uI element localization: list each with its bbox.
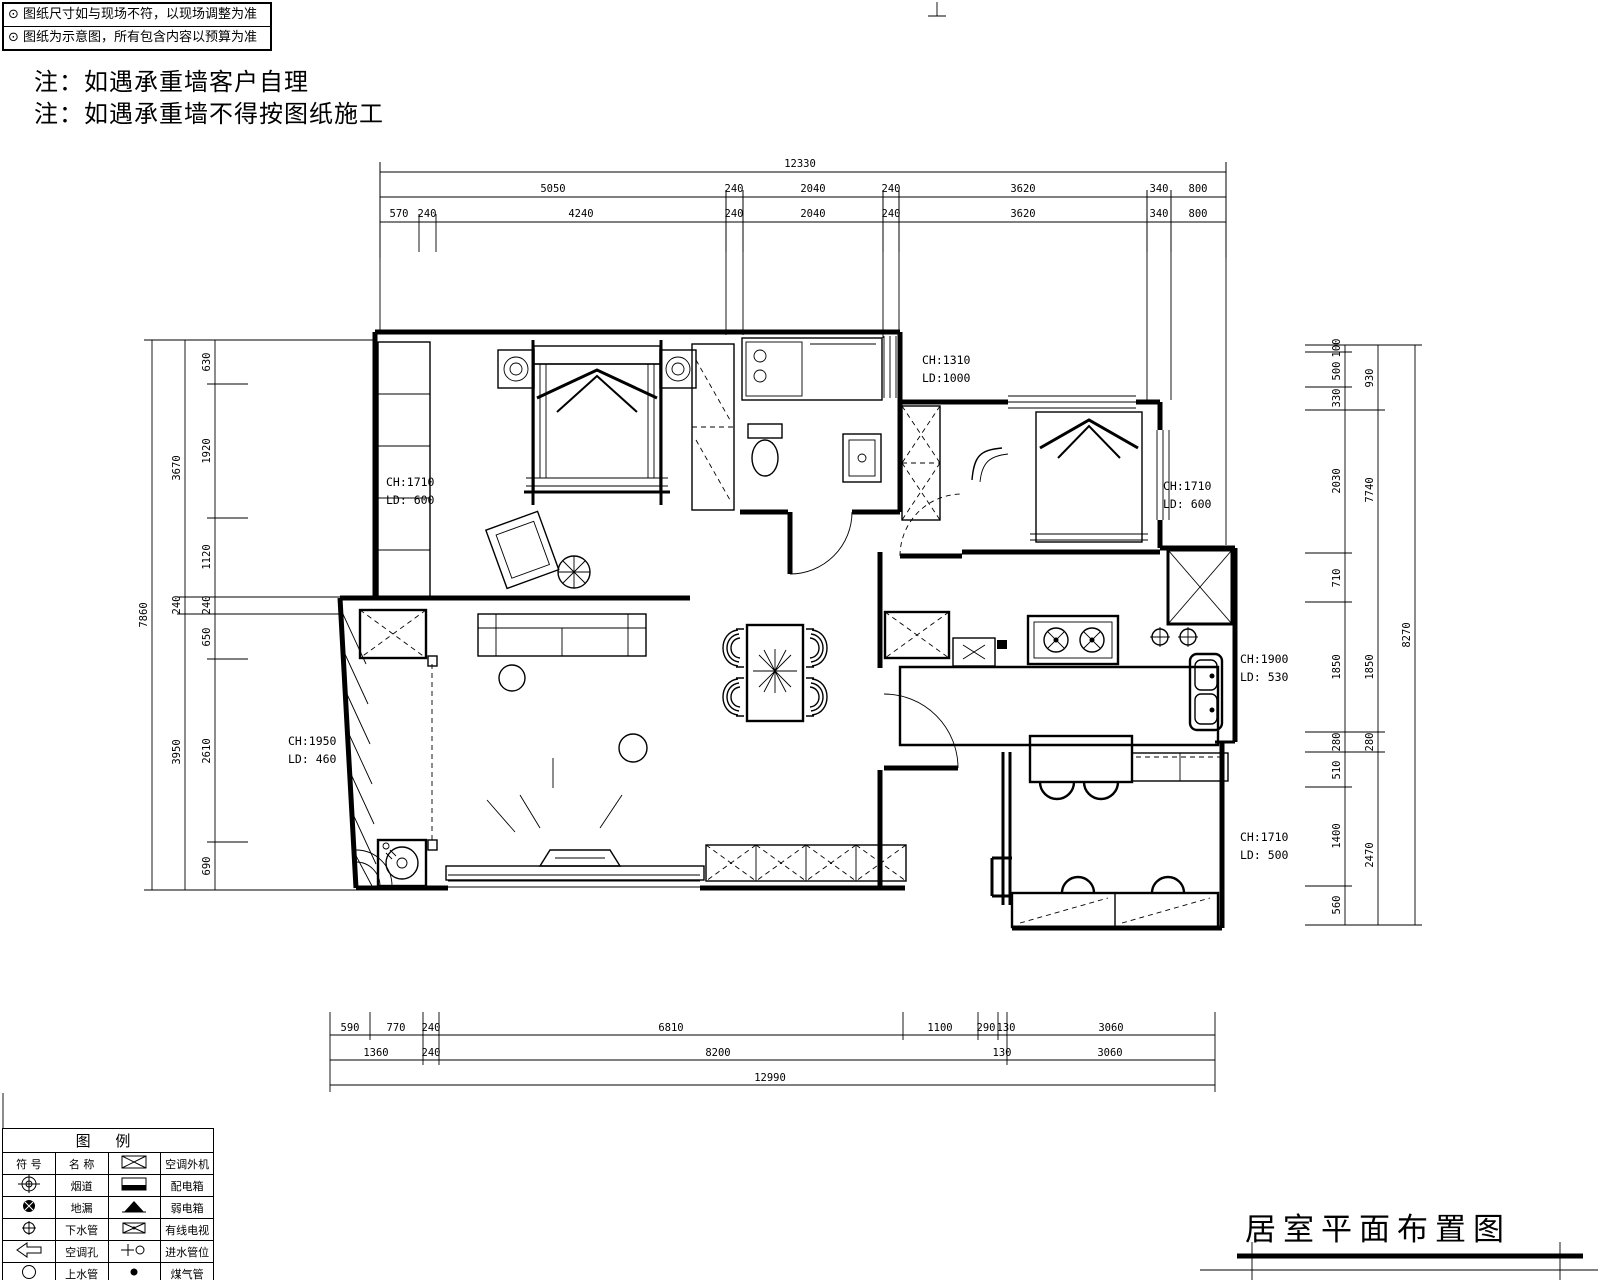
legend-symbol-header: 符 号 <box>3 1153 56 1175</box>
legend-label: 空调外机 <box>161 1153 214 1175</box>
windows <box>448 336 1169 887</box>
dim-label: 800 <box>1189 208 1208 220</box>
title-block: 居室平面布置图 <box>1200 1212 1598 1280</box>
dim-label: 3670 <box>171 455 183 480</box>
cable-tv-icon <box>119 1219 149 1237</box>
low-voltage-box-icon <box>119 1197 149 1215</box>
dim-label: 2610 <box>201 738 213 763</box>
gas-pipe-icon <box>119 1263 149 1280</box>
legend-table: 图 例 符 号 名 称 空调外机 烟道 配电箱 地漏 <box>2 1128 214 1280</box>
dim-label: 510 <box>1331 761 1343 780</box>
dim-label: 770 <box>387 1022 406 1034</box>
sheet-frame-mark <box>3 2 946 1128</box>
dim-label: 240 <box>725 183 744 195</box>
annotation-text: LD:1000 <box>922 371 971 385</box>
kitchen-fixtures <box>885 550 1232 745</box>
dim-label: 630 <box>201 353 213 372</box>
legend-label: 煤气管 <box>161 1263 214 1280</box>
legend-label: 空调孔 <box>55 1241 108 1263</box>
dim-label: 240 <box>422 1022 441 1034</box>
dim-label: 340 <box>1150 183 1169 195</box>
dim-label: 930 <box>1364 369 1376 388</box>
dim-label: 1120 <box>201 544 213 569</box>
dim-label: 4240 <box>568 208 593 220</box>
annotation-text: LD: 500 <box>1240 848 1289 862</box>
legend-label: 进水管位 <box>161 1241 214 1263</box>
floor-drain-icon <box>14 1197 44 1215</box>
dim-label: 560 <box>1331 896 1343 915</box>
room-annotations: CH:1310 LD:1000 CH:1710 LD: 600 CH:1710 … <box>288 353 1289 862</box>
legend-label: 下水管 <box>55 1219 108 1241</box>
dim-label: 2040 <box>800 208 825 220</box>
dimension-labels-left: 630 1920 1120 240 650 2610 690 3670 240 … <box>138 353 213 876</box>
dim-label: 570 <box>390 208 409 220</box>
power-box-icon <box>119 1175 149 1193</box>
dim-label: 1360 <box>363 1047 388 1059</box>
dimension-labels-right: 100 500 330 2030 710 1850 280 510 1400 5… <box>1331 339 1413 915</box>
legend-cell <box>108 1241 161 1263</box>
annotation-text: CH:1710 <box>386 475 435 489</box>
dim-label: 240 <box>725 208 744 220</box>
balcony-fixtures <box>1012 736 1228 927</box>
dimension-labels-bottom: 590 770 240 6810 1100 290 130 3060 1360 … <box>341 1022 1124 1084</box>
annotation-text: LD: 600 <box>1163 497 1212 511</box>
legend-label: 有线电视 <box>161 1219 214 1241</box>
legend-cell <box>3 1241 56 1263</box>
dim-label: 1100 <box>927 1022 952 1034</box>
ac-hole-icon <box>14 1241 44 1259</box>
dim-label: 280 <box>1331 733 1343 752</box>
dim-label: 710 <box>1331 569 1343 588</box>
annotation-text: LD: 600 <box>386 493 435 507</box>
bedroom-right-furniture <box>902 406 1148 542</box>
dim-label: 7740 <box>1364 477 1376 502</box>
legend-cell <box>108 1153 161 1175</box>
dim-label: 3950 <box>171 739 183 764</box>
dim-label: 240 <box>882 208 901 220</box>
annotation-text: LD: 460 <box>288 752 337 766</box>
annotation-text: CH:1710 <box>1240 830 1289 844</box>
legend-cell <box>3 1197 56 1219</box>
dim-label: 650 <box>201 628 213 647</box>
dim-label: 800 <box>1189 183 1208 195</box>
dim-label: 240 <box>422 1047 441 1059</box>
dim-label: 2470 <box>1364 842 1376 867</box>
legend-label: 烟道 <box>55 1175 108 1197</box>
legend-label: 上水管 <box>55 1263 108 1280</box>
dim-label: 240 <box>882 183 901 195</box>
dim-label: 100 <box>1331 339 1343 358</box>
bathroom-fixtures <box>742 338 882 482</box>
legend-cell <box>3 1175 56 1197</box>
dim-label: 7860 <box>138 602 150 627</box>
dim-label: 240 <box>418 208 437 220</box>
dim-label: 3620 <box>1010 208 1035 220</box>
floor-plan-drawing: 12330 5050 240 2040 240 3620 340 800 570… <box>0 0 1600 1280</box>
dim-label: 290 <box>977 1022 996 1034</box>
legend-cell <box>108 1263 161 1280</box>
legend-label: 弱电箱 <box>161 1197 214 1219</box>
dim-label: 1850 <box>1331 654 1343 679</box>
legend-label: 地漏 <box>55 1197 108 1219</box>
dim-label: 3620 <box>1010 183 1035 195</box>
dim-label: 2040 <box>800 183 825 195</box>
floor-plan-sheet: ⊙ 图纸尺寸如与现场不符，以现场调整为准 ⊙ 图纸为示意图，所有包含内容以预算为… <box>0 0 1600 1280</box>
legend-cell <box>3 1263 56 1280</box>
dim-label: 240 <box>201 596 213 615</box>
legend-label: 配电箱 <box>161 1175 214 1197</box>
dim-label: 2030 <box>1331 468 1343 493</box>
dim-label: 590 <box>341 1022 360 1034</box>
dim-label: 240 <box>171 596 183 615</box>
annotation-text: CH:1310 <box>922 353 971 367</box>
secondary-walls <box>992 742 1235 905</box>
dim-label: 280 <box>1364 733 1376 752</box>
annotation-text: LD: 530 <box>1240 670 1289 684</box>
dim-label: 1920 <box>201 438 213 463</box>
ac-outdoor-unit-icon <box>119 1153 149 1171</box>
annotation-text: CH:1900 <box>1240 652 1289 666</box>
dim-label: 340 <box>1150 208 1169 220</box>
dim-label: 130 <box>993 1047 1012 1059</box>
dim-label: 12330 <box>784 158 816 170</box>
dim-label: 690 <box>201 857 213 876</box>
dim-label: 130 <box>997 1022 1016 1034</box>
dim-label: 12990 <box>754 1072 786 1084</box>
annotation-text: CH:1950 <box>288 734 337 748</box>
flue-icon <box>14 1175 44 1193</box>
walls <box>340 332 1235 928</box>
plan-title: 居室平面布置图 <box>1245 1212 1511 1248</box>
legend-name-header: 名 称 <box>55 1153 108 1175</box>
sewer-pipe-icon <box>14 1219 44 1237</box>
entry-area <box>342 610 437 886</box>
living-dining-furniture <box>446 614 906 881</box>
dimension-labels-top: 12330 5050 240 2040 240 3620 340 800 570… <box>390 158 1208 220</box>
dim-label: 8270 <box>1401 622 1413 647</box>
water-inlet-icon <box>119 1241 149 1259</box>
water-supply-icon <box>14 1263 44 1280</box>
bedroom-left-furniture <box>378 340 734 598</box>
dim-label: 1850 <box>1364 654 1376 679</box>
dim-label: 330 <box>1331 389 1343 408</box>
plant <box>753 649 797 693</box>
legend-cell <box>108 1197 161 1219</box>
dimension-lines <box>144 162 1422 1092</box>
dim-label: 8200 <box>705 1047 730 1059</box>
legend-cell <box>108 1219 161 1241</box>
dim-label: 5050 <box>540 183 565 195</box>
annotation-text: CH:1710 <box>1163 479 1212 493</box>
dim-label: 1400 <box>1331 823 1343 848</box>
dim-label: 500 <box>1331 362 1343 381</box>
dim-label: 3060 <box>1098 1022 1123 1034</box>
legend-title: 图 例 <box>3 1129 214 1153</box>
legend-cell <box>3 1219 56 1241</box>
dim-label: 3060 <box>1097 1047 1122 1059</box>
dim-label: 6810 <box>658 1022 683 1034</box>
legend-cell <box>108 1175 161 1197</box>
